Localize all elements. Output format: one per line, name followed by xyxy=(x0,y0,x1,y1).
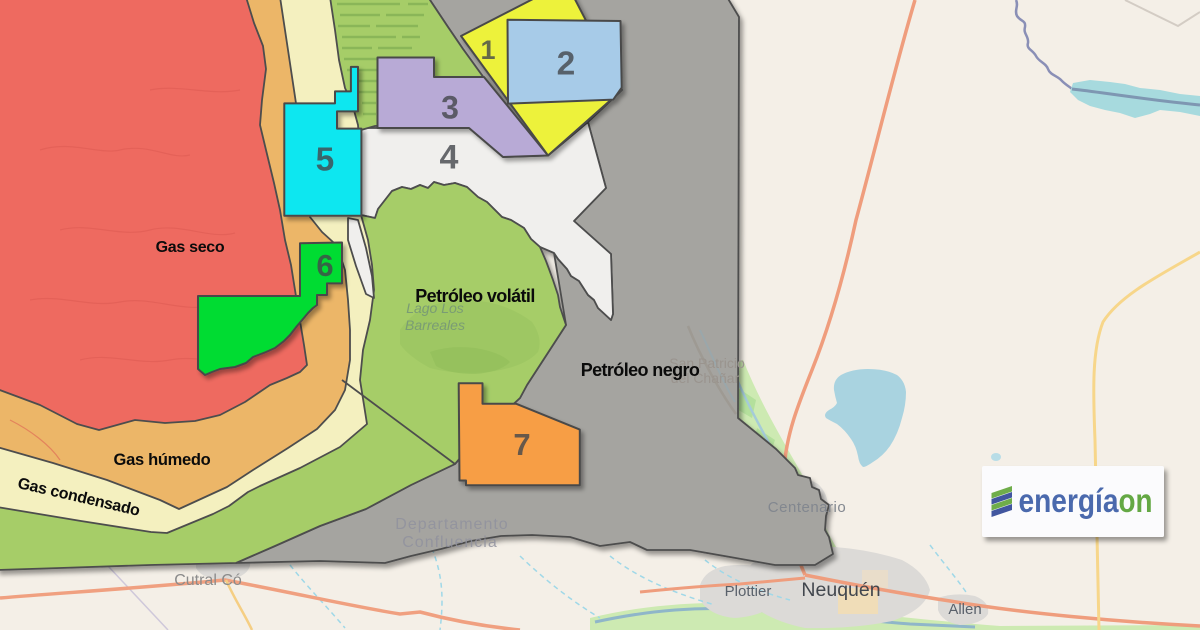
svg-text:7: 7 xyxy=(513,427,530,462)
svg-text:Confluencia: Confluencia xyxy=(402,534,498,551)
svg-text:Plottier: Plottier xyxy=(725,583,772,600)
svg-text:5: 5 xyxy=(316,142,335,179)
svg-text:1: 1 xyxy=(480,35,495,65)
svg-text:Gas húmedo: Gas húmedo xyxy=(114,451,211,469)
svg-text:2: 2 xyxy=(557,46,576,83)
svg-text:Departamento: Departamento xyxy=(395,516,508,533)
svg-text:Barreales: Barreales xyxy=(405,317,465,333)
svg-text:Petróleo negro: Petróleo negro xyxy=(581,360,700,380)
svg-text:energía: energía xyxy=(1019,482,1120,519)
svg-text:on: on xyxy=(1119,482,1153,519)
svg-text:Gas seco: Gas seco xyxy=(156,239,225,256)
svg-text:6: 6 xyxy=(316,248,333,283)
svg-text:3: 3 xyxy=(441,90,459,126)
svg-text:Cutral Có: Cutral Có xyxy=(174,572,242,589)
svg-text:Neuquén: Neuquén xyxy=(801,579,880,601)
svg-text:Petróleo volátil: Petróleo volátil xyxy=(415,286,534,306)
svg-text:Allen: Allen xyxy=(948,601,981,618)
svg-text:4: 4 xyxy=(440,139,459,177)
svg-text:Centenario: Centenario xyxy=(768,499,846,516)
